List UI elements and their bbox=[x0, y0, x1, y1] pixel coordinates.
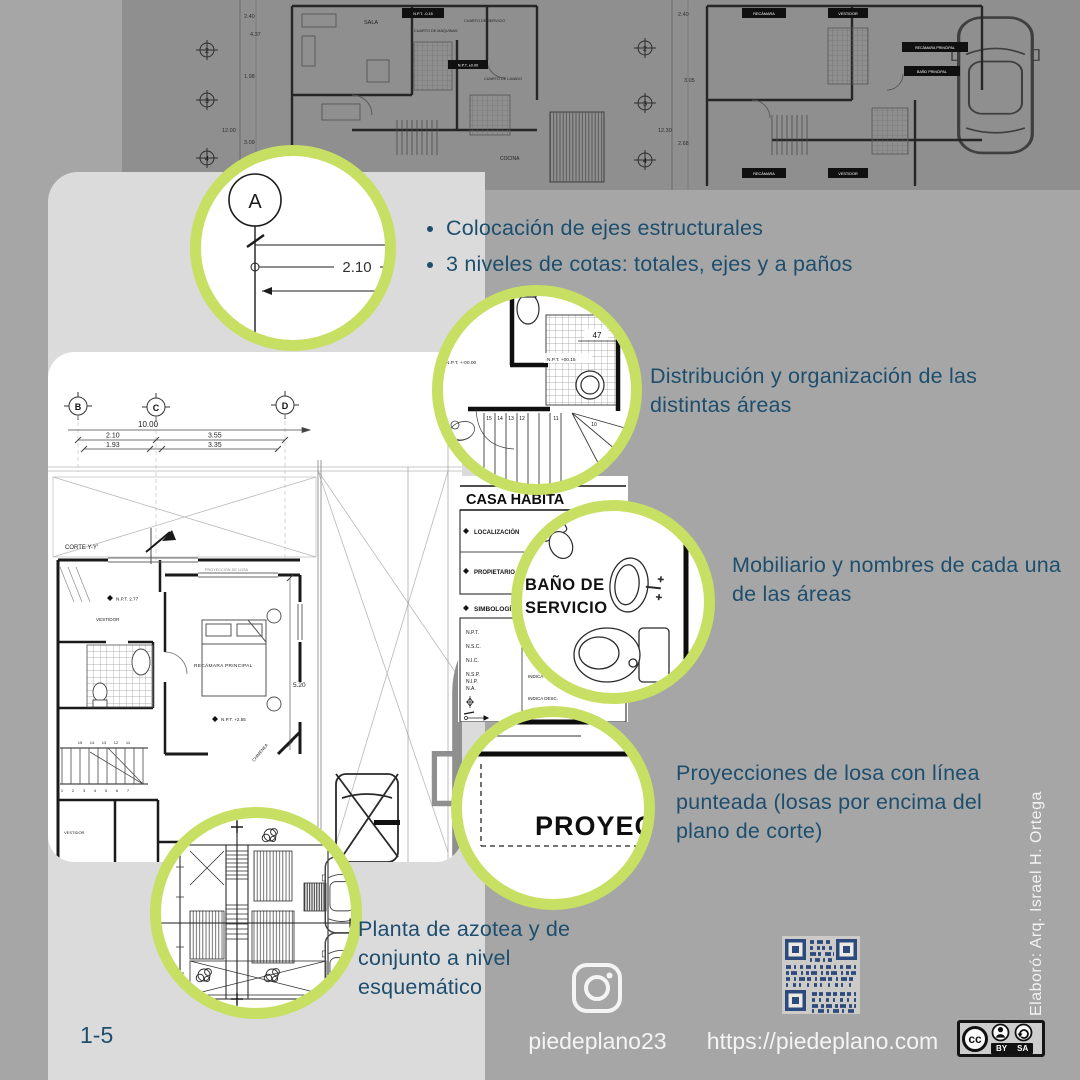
title-block-title: CASA HABITA bbox=[466, 492, 565, 508]
axis-letter: C bbox=[153, 403, 160, 413]
svg-text:4.37: 4.37 bbox=[250, 32, 261, 38]
cc-logo: cc bbox=[962, 1026, 988, 1052]
level-tag: N.P.T. ±0.00 bbox=[458, 64, 478, 68]
axis-number: 2 bbox=[643, 46, 647, 53]
npt-277-label: N.P.T. 2.77 bbox=[116, 597, 139, 602]
svg-text:8: 8 bbox=[471, 461, 474, 467]
svg-text:3.09: 3.09 bbox=[244, 140, 255, 146]
svg-text:10: 10 bbox=[591, 422, 597, 428]
svg-text:RECÁMARA: RECÁMARA bbox=[753, 12, 775, 16]
callout-azotea bbox=[150, 807, 362, 1019]
proyeccion-label: PROYEC bbox=[535, 811, 644, 841]
vestidor-2-label: VESTIDOR bbox=[64, 830, 85, 835]
svg-text:14: 14 bbox=[90, 740, 95, 745]
infographic-canvas: 2 3 4 2.40 4.37 1.98 12.00 3.09 4.31 bbox=[0, 0, 1080, 1080]
svg-text:RECÁMARA: RECÁMARA bbox=[753, 172, 775, 176]
axis-number: 4 bbox=[643, 158, 647, 165]
dim-pano2: 3.35 bbox=[208, 442, 222, 449]
bullet-item-cotas: 3 niveles de cotas: totales, ejes y a pa… bbox=[446, 250, 916, 279]
page-number: 1-5 bbox=[80, 1022, 113, 1049]
dim-total: 10.00 bbox=[138, 420, 159, 429]
dim-210: 2.10 bbox=[342, 259, 371, 276]
svg-text:LOCALIZACIÓN: LOCALIZACIÓN bbox=[474, 528, 519, 536]
svg-text:14: 14 bbox=[497, 416, 503, 422]
svg-text:SIMBOLOGÍA: SIMBOLOGÍA bbox=[474, 604, 516, 613]
svg-text:BAÑO DE: BAÑO DE bbox=[525, 574, 605, 594]
room-label: CUARTO DE SERVICIO bbox=[464, 19, 505, 23]
callout-distribucion: 47 N.P.T. +-00.00 N.P.T. +00.15 15 14 13… bbox=[432, 285, 642, 495]
svg-text:2: 2 bbox=[72, 788, 75, 793]
svg-text:N.P.T. +00.15: N.P.T. +00.15 bbox=[547, 357, 576, 363]
svg-text:6: 6 bbox=[116, 788, 119, 793]
main-floor-plan: B C D 10.00 2.10 3.55 1.93 3.35 bbox=[48, 352, 462, 862]
vestidor-label: VESTIDOR bbox=[96, 617, 120, 622]
svg-text:N.I.C.: N.I.C. bbox=[466, 658, 479, 664]
dimension-rows: 10.00 2.10 3.55 1.93 3.35 bbox=[68, 420, 310, 452]
dim-eje2: 3.55 bbox=[208, 433, 222, 440]
car-bottom bbox=[336, 774, 400, 862]
cc-sa-label: SA bbox=[1017, 1044, 1028, 1053]
svg-text:N.S.P.: N.S.P. bbox=[466, 672, 480, 678]
stairs: 15 14 13 12 11 8 1 2 3 4 5 6 7 bbox=[57, 740, 148, 793]
cc-sa-arrow-icon bbox=[1014, 1023, 1033, 1042]
washbasin bbox=[607, 556, 665, 615]
svg-text:1.98: 1.98 bbox=[244, 74, 255, 80]
bullet-list: Colocación de ejes estructurales 3 nivel… bbox=[420, 214, 916, 286]
recamara-label: RECÁMARA PRINCIPAL bbox=[194, 662, 253, 669]
svg-text:RECÁMARA PRINCIPAL: RECÁMARA PRINCIPAL bbox=[915, 46, 955, 50]
svg-text:1: 1 bbox=[61, 788, 64, 793]
svg-text:N.I.P.: N.I.P. bbox=[466, 679, 478, 685]
cc-by-person-icon bbox=[991, 1023, 1010, 1042]
npt-255-label: N.P.T. +2.55 bbox=[221, 717, 246, 722]
axis-letter-a: A bbox=[248, 191, 262, 213]
svg-text:INDICA DESC.: INDICA DESC. bbox=[528, 696, 558, 701]
room-label-sala: SALA bbox=[364, 20, 378, 26]
axis-number: 3 bbox=[205, 98, 209, 105]
axis-letter: B bbox=[75, 402, 82, 412]
cc-license-badge: cc BY SA bbox=[957, 1020, 1045, 1057]
svg-text:VESTIDOR: VESTIDOR bbox=[838, 172, 858, 176]
axis-row: B C D bbox=[64, 391, 299, 560]
callout-proyeccion: PROYEC bbox=[451, 706, 655, 910]
svg-text:11: 11 bbox=[126, 740, 131, 745]
level-tag: N.P.T. -0.15 bbox=[413, 12, 433, 16]
main-floor-plan-panel: B C D 10.00 2.10 3.55 1.93 3.35 bbox=[48, 352, 462, 862]
toilet bbox=[574, 628, 669, 682]
callout-bano: BAÑO DE SERVICIO bbox=[511, 500, 715, 704]
note-proyecciones: Proyecciones de losa con línea punteada … bbox=[676, 759, 1016, 847]
svg-text:15: 15 bbox=[486, 416, 492, 422]
svg-text:47: 47 bbox=[593, 331, 602, 340]
svg-text:N.P.T.: N.P.T. bbox=[466, 630, 479, 636]
svg-text:SERVICIO: SERVICIO bbox=[525, 599, 608, 617]
author-credit: Elaboró: Arq. Israel H. Ortega bbox=[1024, 776, 1050, 1016]
axis-number: 4 bbox=[205, 156, 209, 163]
cc-by-label: BY bbox=[996, 1044, 1007, 1053]
svg-text:2.40: 2.40 bbox=[244, 14, 255, 20]
svg-text:7: 7 bbox=[127, 788, 130, 793]
svg-text:13: 13 bbox=[102, 740, 107, 745]
bed bbox=[202, 609, 281, 711]
svg-text:2.68: 2.68 bbox=[678, 141, 689, 147]
dim-eje1: 2.10 bbox=[106, 433, 120, 440]
svg-text:PROPIETARIO: PROPIETARIO bbox=[474, 570, 515, 576]
svg-text:VESTIDOR: VESTIDOR bbox=[838, 12, 858, 16]
svg-text:N.A.: N.A. bbox=[466, 686, 476, 692]
svg-text:12.00: 12.00 bbox=[222, 128, 236, 134]
room-label: COCINA bbox=[500, 156, 520, 162]
website-url: https://piedeplano.com bbox=[700, 1028, 945, 1055]
svg-text:N.S.C.: N.S.C. bbox=[466, 644, 481, 650]
callout-ejes: A 2.10 bbox=[190, 145, 396, 351]
chimenea-label: CHIMENEA bbox=[251, 742, 269, 762]
note-distribucion: Distribución y organización de las disti… bbox=[650, 362, 1020, 420]
svg-text:3: 3 bbox=[83, 788, 86, 793]
svg-text:12: 12 bbox=[519, 416, 525, 422]
instagram-handle: piedeplano23 bbox=[515, 1028, 680, 1055]
svg-text:2.40: 2.40 bbox=[678, 12, 689, 18]
qr-code bbox=[782, 936, 860, 1014]
proyeccion-losa-label: PROYECCIÓN DE LOSA bbox=[205, 567, 249, 572]
axis-number: 2 bbox=[205, 48, 209, 55]
svg-text:11: 11 bbox=[553, 416, 558, 422]
svg-text:13: 13 bbox=[508, 416, 514, 422]
room-label: CUARTO DE MÁQUINAS bbox=[414, 29, 458, 33]
svg-text:N.P.T. +-00.00: N.P.T. +-00.00 bbox=[446, 360, 477, 366]
svg-text:5: 5 bbox=[105, 788, 108, 793]
svg-text:12: 12 bbox=[114, 740, 119, 745]
room-name: BAÑO DE SERVICIO bbox=[525, 574, 608, 617]
svg-text:15: 15 bbox=[78, 740, 83, 745]
corte-label: CORTE Y-Y' bbox=[65, 545, 98, 551]
axis-letter: D bbox=[282, 401, 289, 411]
axis-number: 3 bbox=[643, 101, 647, 108]
svg-text:3.05: 3.05 bbox=[684, 78, 695, 84]
room-label: CUARTO DE LAVADO bbox=[484, 77, 522, 81]
height-dim: 5.20 bbox=[287, 575, 306, 750]
door-arc bbox=[165, 652, 187, 674]
sketch-chair bbox=[447, 418, 478, 444]
svg-text:4: 4 bbox=[94, 788, 97, 793]
svg-text:BAÑO PRINCIPAL: BAÑO PRINCIPAL bbox=[917, 69, 947, 74]
dim-pano1: 1.93 bbox=[106, 442, 120, 449]
bullet-item-ejes: Colocación de ejes estructurales bbox=[446, 214, 916, 243]
dim-520: 5.20 bbox=[293, 682, 306, 689]
note-mobiliario: Mobiliario y nombres de cada una de las … bbox=[732, 551, 1062, 609]
svg-text:12.30: 12.30 bbox=[658, 128, 672, 134]
closet-hatch bbox=[60, 567, 90, 602]
instagram-icon bbox=[571, 962, 623, 1014]
